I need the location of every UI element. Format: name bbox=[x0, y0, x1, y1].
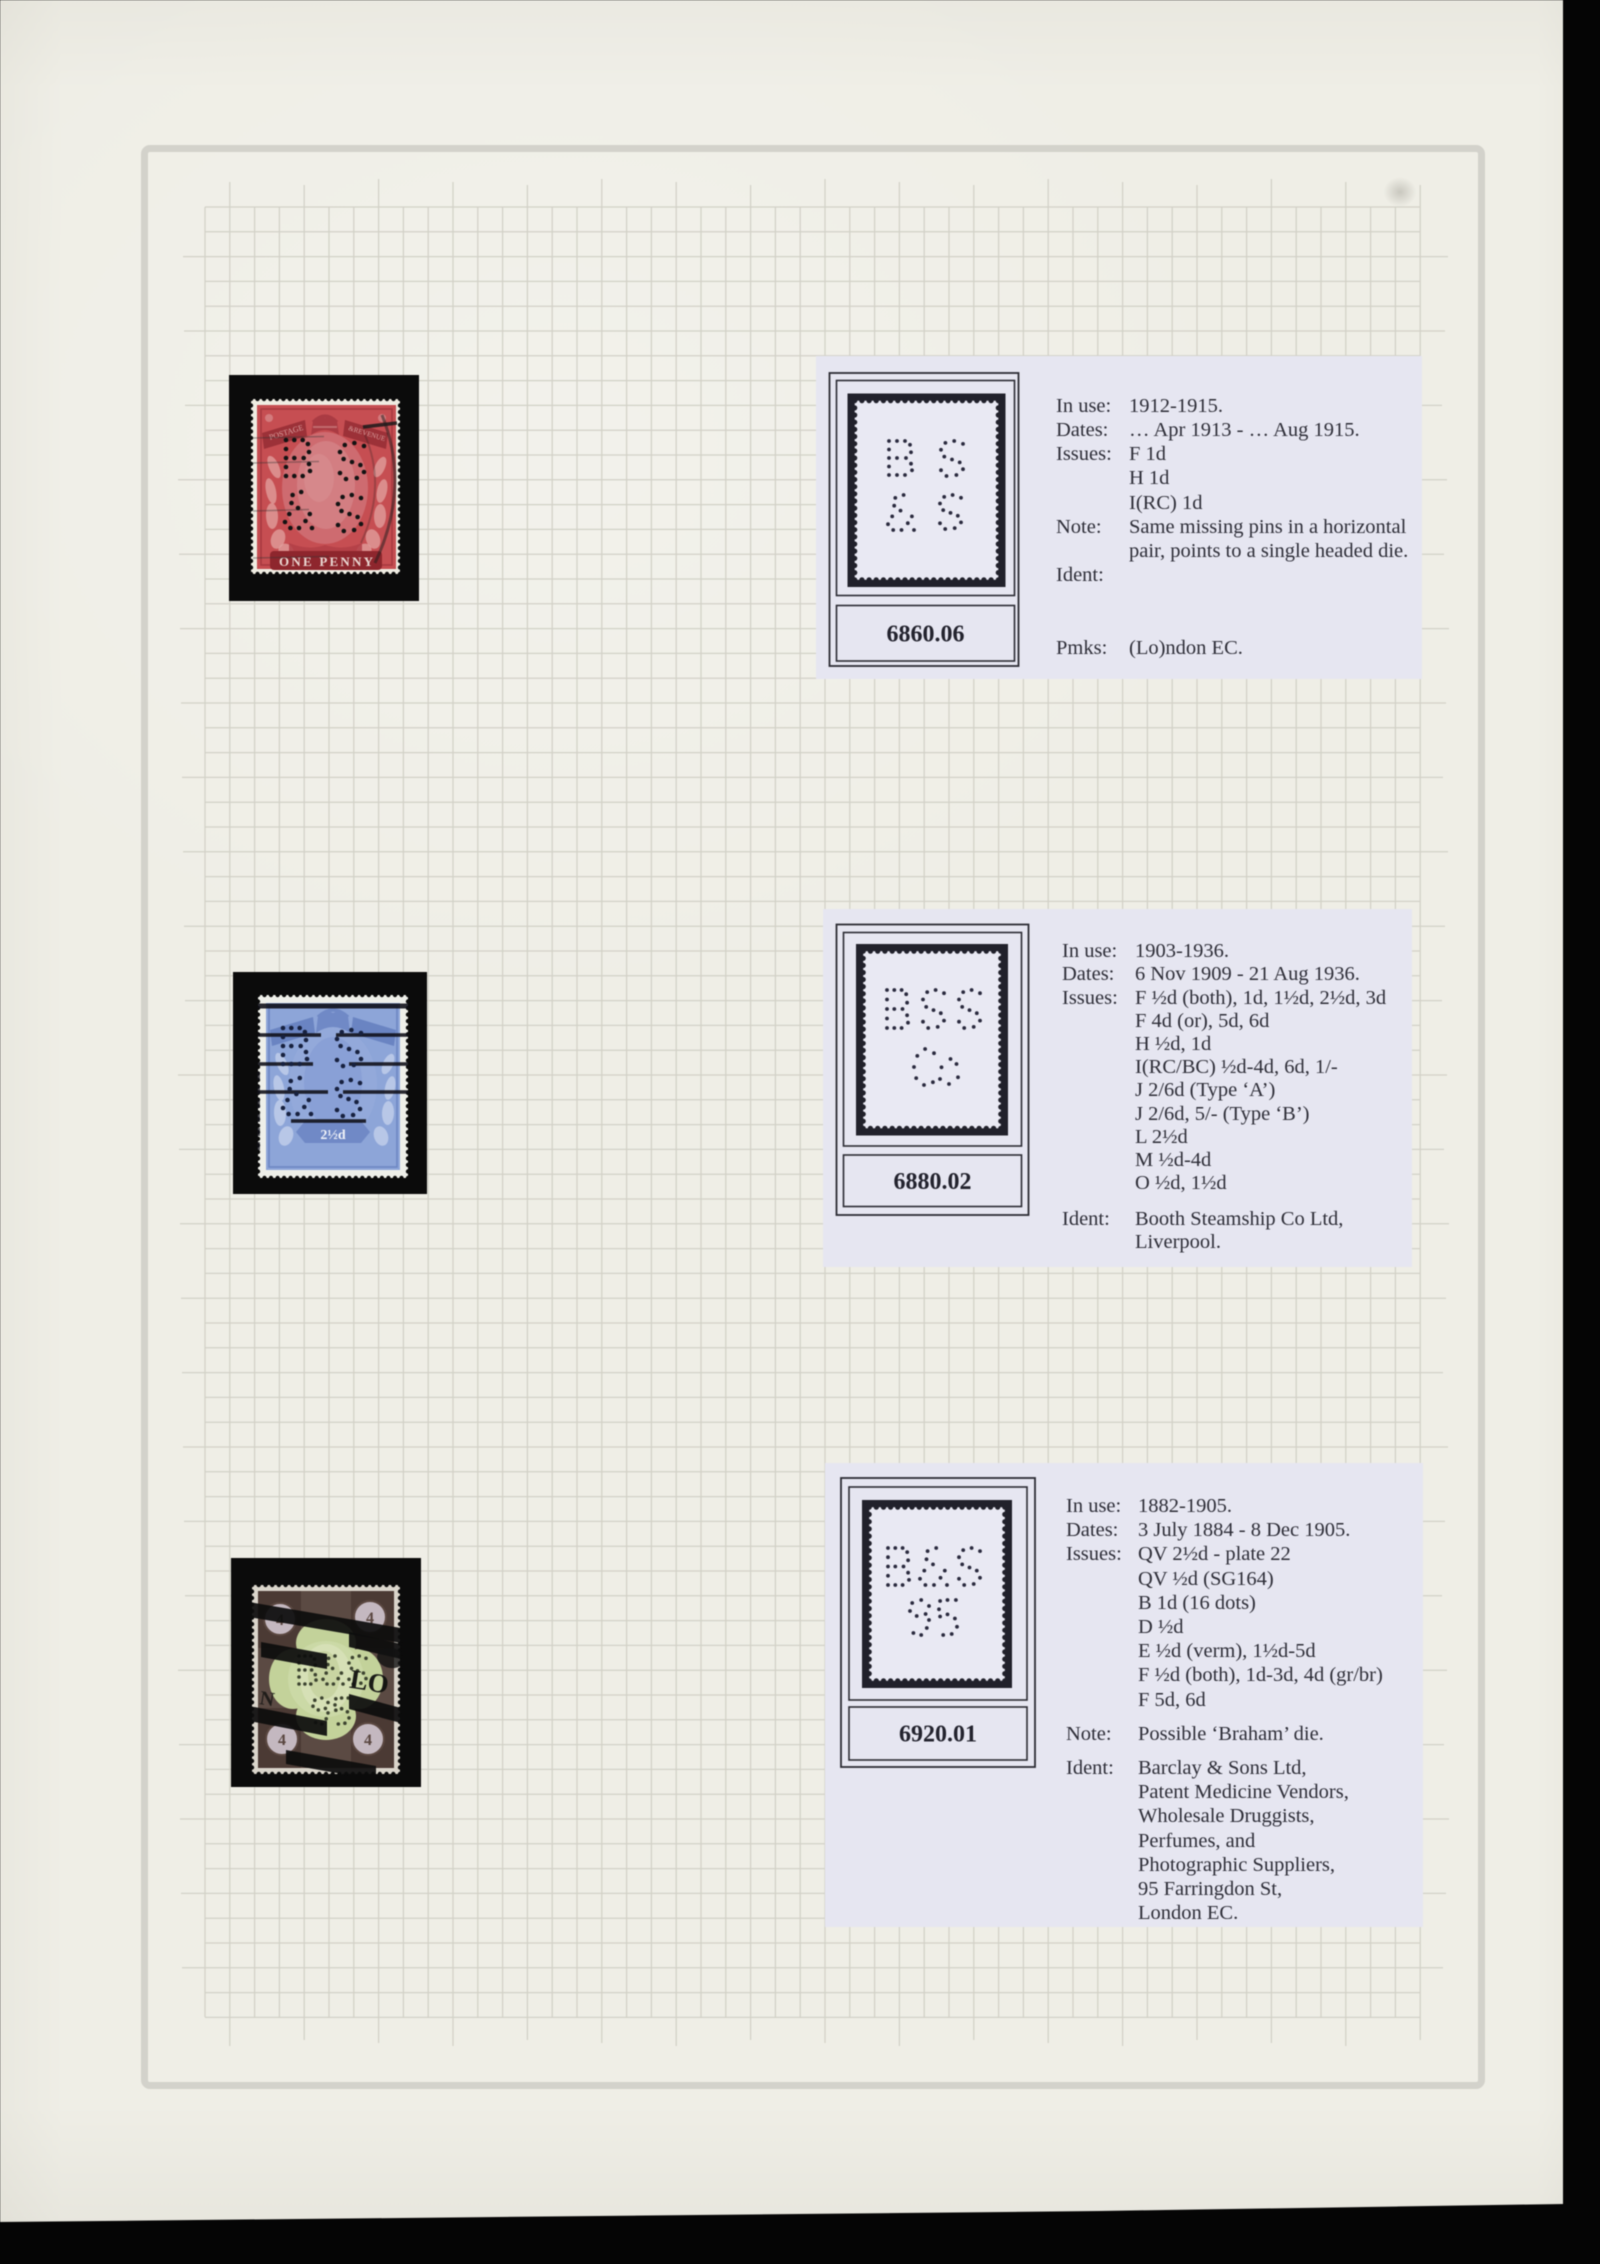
svg-text:LO: LO bbox=[348, 1664, 391, 1700]
svg-text:4: 4 bbox=[278, 1732, 286, 1749]
svg-text:2½d: 2½d bbox=[320, 1128, 346, 1143]
svg-text:4: 4 bbox=[364, 1732, 372, 1749]
